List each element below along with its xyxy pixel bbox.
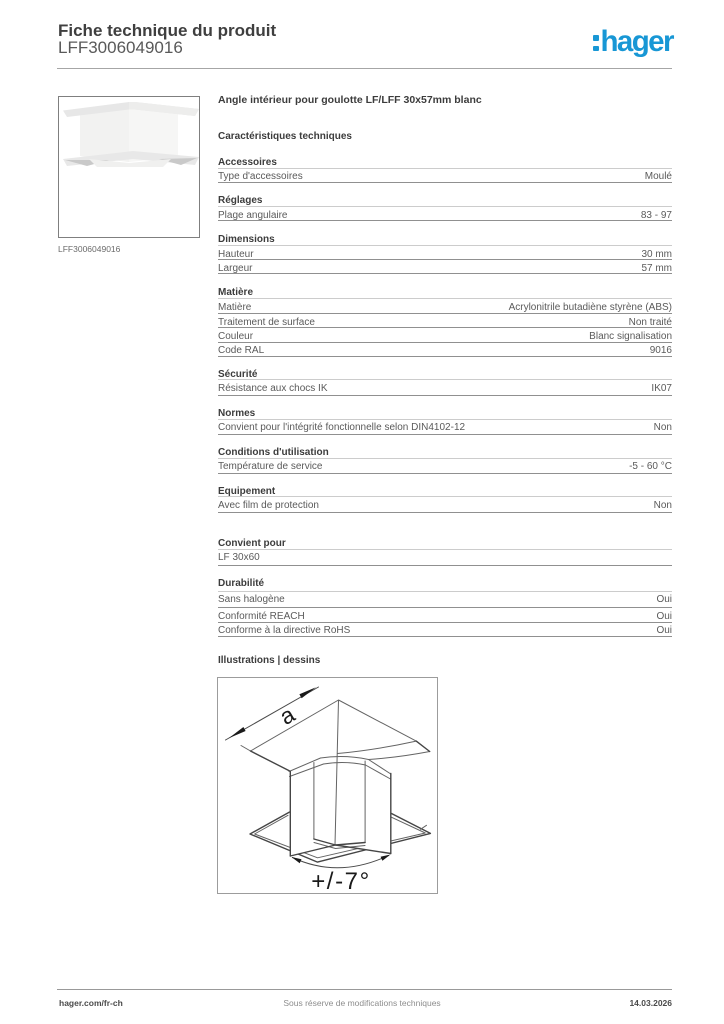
svg-text:+/-7°: +/-7° (311, 868, 371, 894)
